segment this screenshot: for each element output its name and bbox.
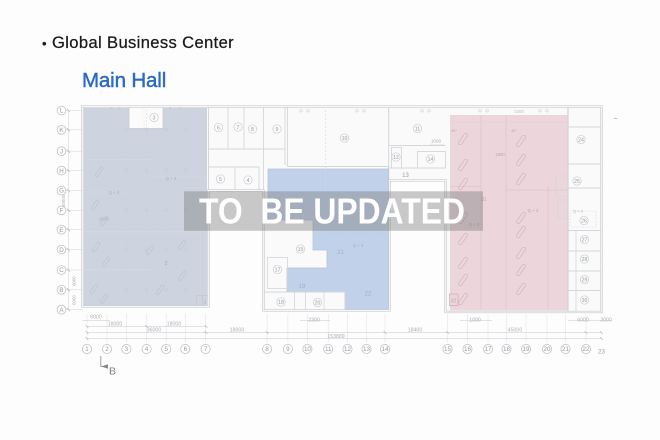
svg-text:25: 25 <box>574 179 580 185</box>
svg-text:22: 22 <box>365 292 372 298</box>
svg-text:4: 4 <box>145 346 149 353</box>
svg-text:29: 29 <box>582 278 588 284</box>
svg-text:3000: 3000 <box>600 318 612 324</box>
svg-text:Q + 3: Q + 3 <box>528 208 539 213</box>
svg-text:153889: 153889 <box>327 334 344 340</box>
svg-text:3: 3 <box>125 346 129 353</box>
svg-text:F: F <box>60 208 64 215</box>
svg-text:1000: 1000 <box>431 139 442 144</box>
svg-text:18000: 18000 <box>167 322 182 328</box>
svg-text:30: 30 <box>582 298 588 304</box>
svg-text:E: E <box>59 227 63 234</box>
svg-text:1900: 1900 <box>495 152 505 157</box>
svg-text:6000: 6000 <box>577 318 589 324</box>
svg-text:9: 9 <box>286 346 290 353</box>
svg-text:15: 15 <box>298 247 304 253</box>
svg-text:Q + 3: Q + 3 <box>353 243 364 248</box>
svg-text:TO BE UPDATED: TO BE UPDATED <box>199 191 465 232</box>
svg-text:17: 17 <box>485 346 492 353</box>
svg-text:C: C <box>59 267 64 274</box>
svg-text:36000: 36000 <box>147 328 162 334</box>
svg-text:Q + 3: Q + 3 <box>109 190 120 195</box>
svg-text:23: 23 <box>598 349 605 356</box>
svg-text:Q + 3: Q + 3 <box>573 209 583 214</box>
svg-text:28: 28 <box>582 257 588 263</box>
svg-text:11: 11 <box>325 346 332 353</box>
svg-text:1: 1 <box>85 346 89 353</box>
svg-text:26: 26 <box>581 219 587 225</box>
svg-text:4: 4 <box>247 178 250 184</box>
svg-text:45000: 45000 <box>508 328 523 334</box>
svg-text:2300: 2300 <box>514 109 524 114</box>
svg-text:7: 7 <box>237 125 240 131</box>
svg-text:Q + 3: Q + 3 <box>166 176 177 181</box>
svg-text:B: B <box>59 287 63 294</box>
svg-text:21: 21 <box>337 250 344 256</box>
svg-text:1: 1 <box>204 300 207 305</box>
svg-text:17: 17 <box>275 268 281 274</box>
svg-text:22: 22 <box>583 346 590 353</box>
svg-text:20: 20 <box>315 301 321 307</box>
svg-text:13: 13 <box>363 346 370 353</box>
svg-text:18400: 18400 <box>408 328 423 334</box>
svg-text:2: 2 <box>105 346 109 353</box>
svg-text:21: 21 <box>562 346 569 353</box>
svg-text:27: 27 <box>582 238 588 244</box>
svg-text:45°: 45° <box>511 129 517 133</box>
svg-text:32: 32 <box>451 299 457 305</box>
svg-text:19: 19 <box>523 346 530 353</box>
svg-text:6000: 6000 <box>90 315 102 321</box>
svg-text:12: 12 <box>393 155 399 161</box>
svg-text:2: 2 <box>164 261 167 267</box>
svg-text:10: 10 <box>342 136 348 142</box>
svg-text:18000: 18000 <box>230 328 245 334</box>
svg-text:20: 20 <box>544 346 551 353</box>
svg-text:12: 12 <box>344 346 351 353</box>
svg-text:14: 14 <box>428 157 434 163</box>
svg-text:11: 11 <box>415 127 420 133</box>
svg-text:8: 8 <box>265 346 269 353</box>
svg-text:18: 18 <box>278 300 284 306</box>
svg-text:L: L <box>60 108 64 115</box>
svg-text:2000: 2000 <box>99 217 109 222</box>
svg-text:2300: 2300 <box>308 318 320 324</box>
svg-text:B: B <box>109 366 116 378</box>
svg-text:60000: 60000 <box>61 194 66 207</box>
svg-text:G: G <box>59 188 64 195</box>
svg-text:10: 10 <box>304 346 311 353</box>
svg-text:15: 15 <box>444 346 451 353</box>
svg-text:13: 13 <box>402 173 409 179</box>
svg-text:5: 5 <box>164 346 168 353</box>
svg-text:6: 6 <box>184 346 188 353</box>
svg-text:5: 5 <box>219 177 222 183</box>
svg-text:1000: 1000 <box>469 318 481 324</box>
svg-text:18: 18 <box>503 346 510 353</box>
svg-text:45°: 45° <box>451 129 457 133</box>
svg-text:H: H <box>59 168 63 175</box>
svg-text:18000: 18000 <box>108 322 123 328</box>
svg-text:8: 8 <box>251 127 254 133</box>
svg-text:16: 16 <box>464 346 471 353</box>
svg-text:24: 24 <box>578 138 584 144</box>
svg-text:7: 7 <box>204 346 208 353</box>
svg-text:D: D <box>59 247 64 254</box>
svg-text:9: 9 <box>276 127 279 133</box>
svg-text:J: J <box>60 148 63 155</box>
svg-text:14: 14 <box>382 346 389 353</box>
svg-text:19: 19 <box>299 284 306 290</box>
svg-text:3: 3 <box>153 116 156 122</box>
svg-text:6000: 6000 <box>72 295 77 305</box>
svg-text:6000: 6000 <box>72 276 77 286</box>
svg-text:6: 6 <box>217 126 220 132</box>
